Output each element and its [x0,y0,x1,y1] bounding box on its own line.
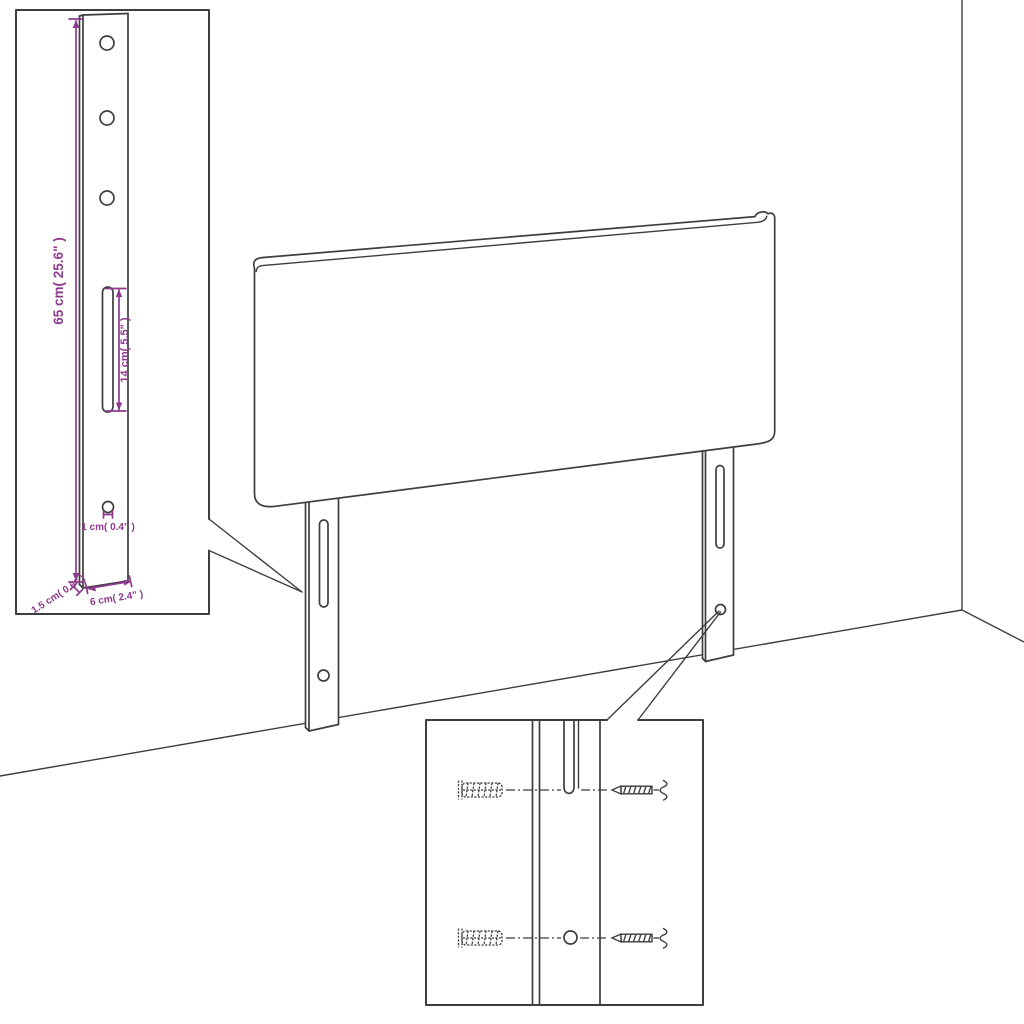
mounting-detail-callout [426,611,721,1005]
slot-length-label: 14 cm( 5.5" ) [119,317,131,382]
hole-diameter-label: 1 cm( 0.4" ) [81,522,135,533]
callout-line-lower [209,551,302,593]
leg-height-label: 65 cm( 25.6" ) [51,237,66,324]
mounting-callout-line-left [607,611,719,720]
product-dimension-diagram: 65 cm( 25.6" ) 14 cm( 5.5" ) 1 cm( 0.4" … [0,0,1024,1024]
diagram-canvas: 65 cm( 25.6" ) 14 cm( 5.5" ) 1 cm( 0.4" … [0,0,1024,1024]
headboard-left-leg [306,494,339,731]
callout-line-upper [209,519,302,592]
left-leg-face [306,494,339,731]
headboard-panel [254,212,775,507]
panel-outline [254,212,775,507]
floor-line-right [962,610,1024,642]
mounting-callout-line-right [638,612,721,720]
